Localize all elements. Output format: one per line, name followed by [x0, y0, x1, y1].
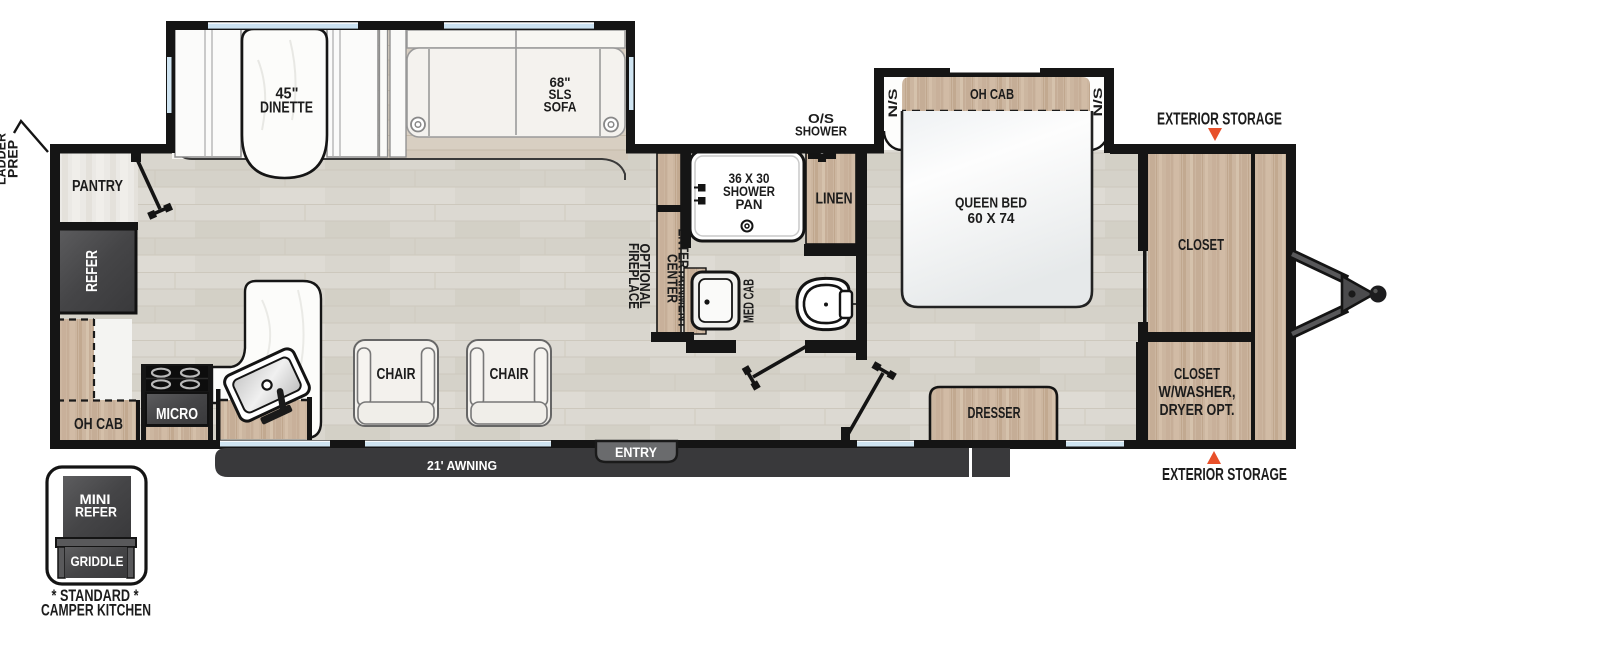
svg-text:SOFA: SOFA [544, 100, 577, 115]
svg-text:SHOWER: SHOWER [795, 125, 847, 139]
svg-text:60 X 74: 60 X 74 [968, 210, 1016, 227]
svg-text:MED CAB: MED CAB [741, 279, 758, 323]
svg-text:PANTRY: PANTRY [72, 178, 123, 195]
svg-text:21' AWNING: 21' AWNING [427, 458, 497, 473]
svg-text:EXTERIOR STORAGE: EXTERIOR STORAGE [1162, 464, 1287, 484]
svg-text:REFER: REFER [84, 250, 101, 292]
svg-text:MICRO: MICRO [156, 406, 198, 423]
svg-text:CLOSET: CLOSET [1174, 366, 1220, 383]
svg-text:PREP: PREP [6, 140, 21, 178]
svg-text:REFER: REFER [75, 504, 117, 520]
svg-text:CENTER: CENTER [664, 254, 681, 303]
svg-text:OH CAB: OH CAB [970, 86, 1014, 103]
svg-text:FIREPLACE: FIREPLACE [625, 243, 641, 309]
svg-text:CAMPER KITCHEN: CAMPER KITCHEN [41, 601, 151, 620]
svg-text:CHAIR: CHAIR [377, 366, 416, 383]
svg-text:PAN: PAN [736, 197, 763, 212]
svg-text:QUEEN BED: QUEEN BED [955, 195, 1027, 212]
svg-text:CHAIR: CHAIR [490, 366, 529, 383]
svg-text:W/WASHER,: W/WASHER, [1159, 384, 1236, 401]
svg-text:N/S: N/S [886, 89, 900, 118]
svg-text:GRIDDLE: GRIDDLE [71, 553, 124, 569]
svg-text:DINETTE: DINETTE [260, 100, 313, 117]
svg-text:CLOSET: CLOSET [1178, 237, 1224, 254]
svg-text:DRESSER: DRESSER [968, 405, 1021, 422]
svg-text:EXTERIOR STORAGE: EXTERIOR STORAGE [1157, 109, 1282, 129]
svg-text:DRYER OPT.: DRYER OPT. [1160, 402, 1235, 419]
svg-text:OH CAB: OH CAB [74, 416, 123, 433]
svg-text:ENTRY: ENTRY [615, 445, 657, 460]
svg-text:LINEN: LINEN [816, 191, 853, 208]
